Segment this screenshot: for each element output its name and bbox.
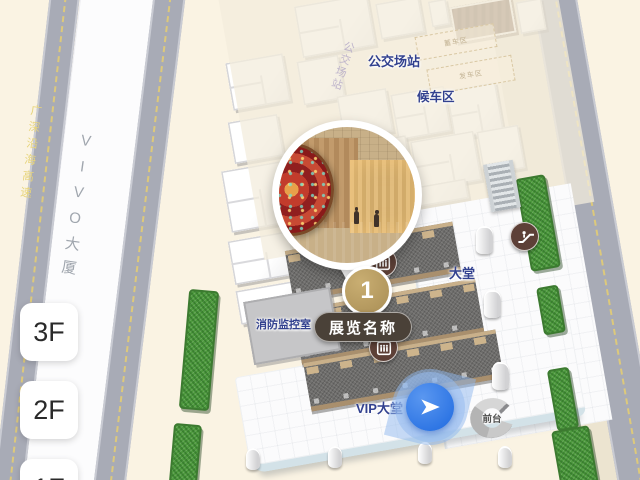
front-desk: 前台: [470, 398, 514, 438]
floor-button-1f[interactable]: 1F: [20, 459, 78, 480]
bollard: [418, 442, 432, 464]
front-desk-label: 前台: [470, 398, 514, 438]
floor-button-3f[interactable]: 3F: [20, 303, 78, 361]
photo-person: [354, 211, 359, 224]
lobby-pillar: [476, 226, 493, 254]
bus-bay-a-label: 蓄车区: [443, 35, 468, 49]
escalator-icon[interactable]: [510, 222, 539, 251]
indoor-map-scene: 广深沿海高速 VIVO大厦 公交场站 蓄车区 发车区 消防监控室 公交场站: [0, 0, 640, 480]
waiting-area-label: 候车区: [417, 86, 455, 105]
bollard: [498, 446, 512, 468]
send-arrow-glyph: [417, 394, 443, 420]
navigation-button[interactable]: [392, 369, 468, 445]
exhibition-photo-pin[interactable]: [272, 120, 422, 270]
navigation-arrow-icon[interactable]: [406, 383, 454, 431]
floor-button-2f[interactable]: 2F: [20, 381, 78, 439]
lobby-pillar: [492, 362, 509, 390]
bollard: [246, 448, 260, 470]
lobby-label: 大堂: [449, 263, 475, 282]
poi-number-badge[interactable]: 1: [342, 266, 392, 316]
fire-control-room-label: 消防监控室: [256, 316, 311, 332]
exhibition-name-pill[interactable]: 展览名称: [314, 312, 412, 342]
bus-terminal-label: 公交场站: [368, 51, 420, 70]
hedge: [179, 289, 219, 411]
hedge: [166, 423, 202, 480]
bollard: [328, 446, 342, 468]
escalator-glyph: [516, 228, 534, 246]
lobby-pillar: [484, 290, 501, 318]
photo-person: [374, 214, 379, 227]
bus-bay-b-label: 发车区: [458, 68, 483, 82]
